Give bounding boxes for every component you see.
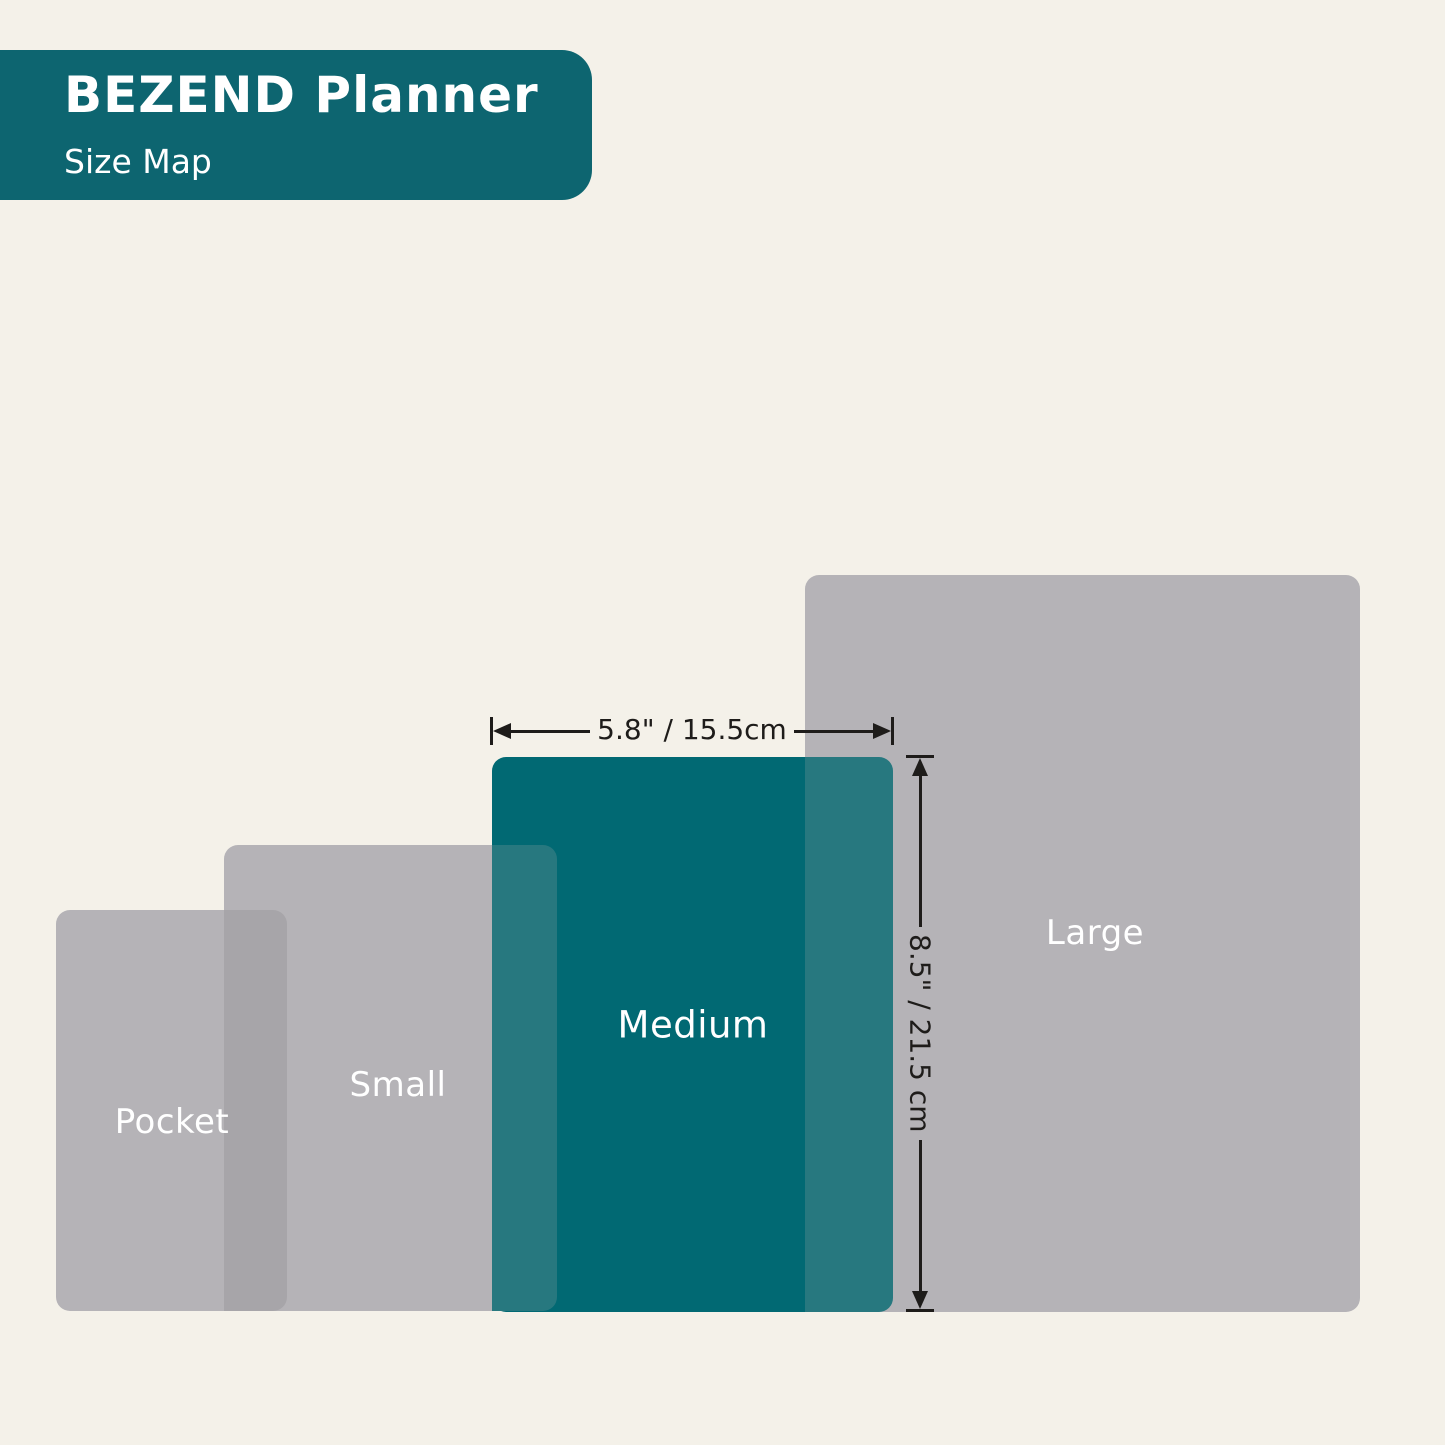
left-arrowhead-icon: [493, 723, 511, 739]
dimension-line: [919, 776, 922, 927]
header-banner: BEZEND Planner Size Map: [0, 50, 592, 200]
height-dimension-label: 8.5" / 21.5 cm: [904, 927, 937, 1140]
brand-title: BEZEND Planner: [64, 66, 539, 124]
dimension-line: [511, 730, 590, 733]
dimension-tick: [891, 717, 894, 745]
small-medium-overlap-strip: [492, 845, 557, 1311]
pocket-label: Pocket: [115, 1102, 230, 1142]
pocket-small-overlap-strip: [224, 910, 287, 1311]
size-map-infographic: BEZEND Planner Size Map Pocket Small Med…: [0, 0, 1445, 1445]
large-label: Large: [1046, 913, 1144, 953]
small-label: Small: [350, 1065, 447, 1105]
right-arrowhead-icon: [873, 723, 891, 739]
dimension-line: [919, 1140, 922, 1291]
height-dimension: 8.5" / 21.5 cm: [906, 755, 934, 1312]
medium-label: Medium: [618, 1004, 769, 1047]
header-subtitle: Size Map: [64, 142, 212, 181]
dimension-line: [794, 730, 873, 733]
dimension-tick: [906, 1309, 934, 1312]
width-dimension-label: 5.8" / 15.5cm: [590, 713, 794, 746]
down-arrowhead-icon: [912, 1291, 928, 1309]
width-dimension: 5.8" / 15.5cm: [490, 717, 894, 745]
medium-large-overlap-strip: [805, 757, 893, 1312]
up-arrowhead-icon: [912, 758, 928, 776]
